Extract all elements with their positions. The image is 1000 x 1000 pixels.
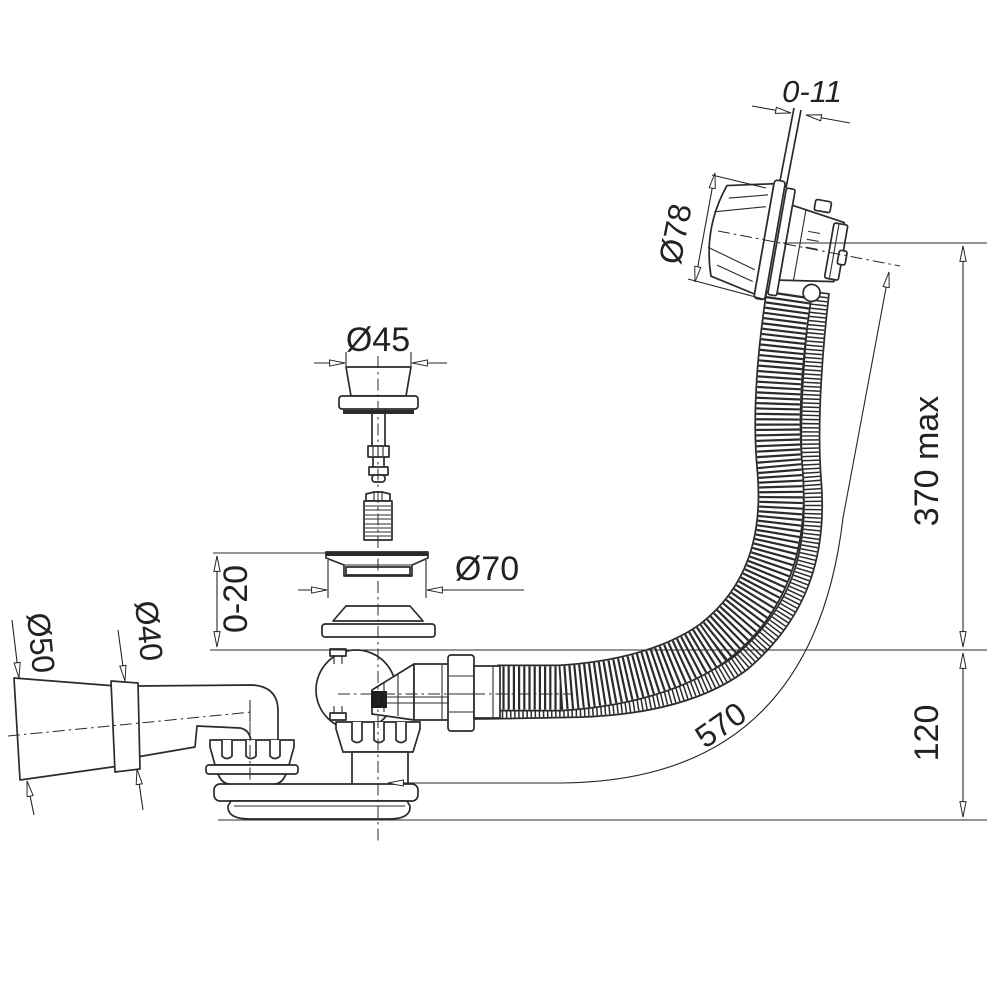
label-hose-length: 570 — [688, 695, 752, 755]
technical-drawing-canvas: Ø45 Ø70 0-20 Ø50 Ø40 Ø78 0-11 370 max 12… — [0, 0, 1000, 1000]
hose-sleeve — [474, 666, 500, 718]
tee-pipe — [414, 664, 450, 720]
label-outlet-inner: Ø40 — [128, 599, 170, 663]
flexible-hose — [497, 294, 789, 688]
hose-corrugations — [497, 294, 789, 688]
control-rod — [779, 108, 801, 188]
trap-cup — [228, 801, 410, 819]
label-head-dia: Ø78 — [652, 201, 699, 267]
label-flange-dia: Ø70 — [455, 550, 519, 588]
trap-cup-rim — [214, 784, 418, 801]
outlet-collar — [111, 681, 140, 772]
hose-nut — [448, 655, 474, 731]
label-flange-height: 0-20 — [217, 565, 255, 633]
dim-outlet-inner — [118, 630, 125, 681]
label-plug-dia: Ø45 — [346, 321, 410, 359]
label-cable-travel: 0-11 — [782, 74, 842, 109]
dim-outlet-outer — [12, 620, 19, 678]
outlet-tube — [14, 678, 119, 780]
label-trap-depth: 120 — [908, 705, 946, 762]
label-max-height: 370 max — [908, 396, 946, 526]
label-outlet-outer: Ø50 — [20, 611, 62, 675]
reference-lines — [210, 243, 987, 820]
overflow-head — [701, 170, 858, 312]
trap-neck — [352, 752, 408, 786]
technical-drawing-page: Ø45 Ø70 0-20 Ø50 Ø40 Ø78 0-11 370 max 12… — [0, 0, 1000, 1000]
